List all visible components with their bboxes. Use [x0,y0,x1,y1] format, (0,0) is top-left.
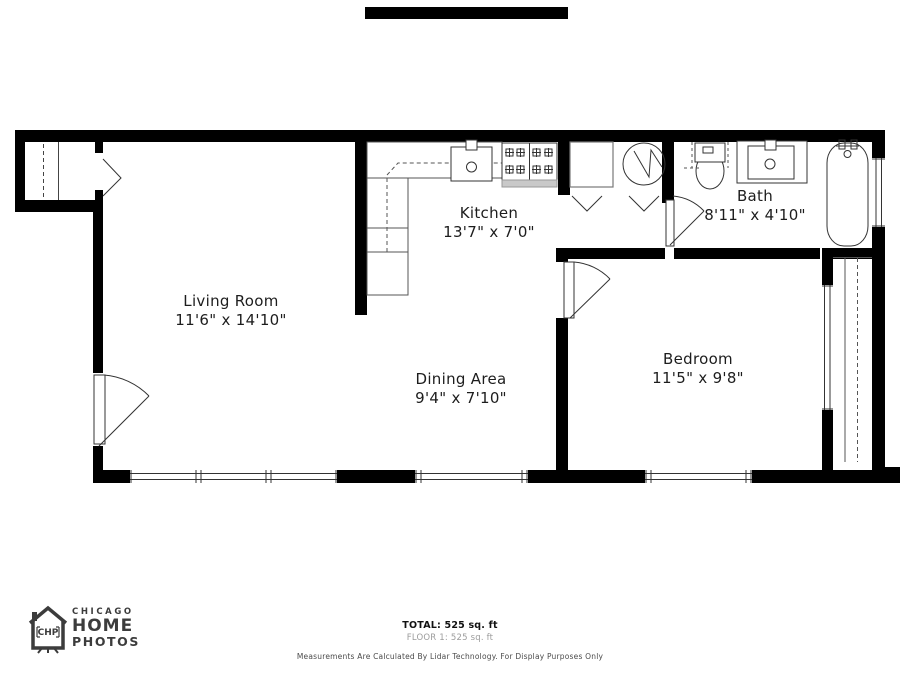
bedroom-closet-rod-icon [833,258,872,463]
label-living-room: Living Room 11'6" x 14'10" [175,292,286,330]
label-dining-area: Dining Area 9'4" x 7'10" [415,370,507,408]
room-name: Kitchen [460,204,518,222]
bathtub-icon [827,140,868,246]
room-name: Bath [737,187,773,205]
window-bedroom-right [822,285,833,410]
dryer-icon [623,143,665,185]
bedroom-door-icon [564,262,610,318]
fixtures-layer [0,0,900,675]
room-dims: 11'6" x 14'10" [175,311,286,330]
bath-sink-icon [737,140,807,183]
room-dims: 8'11" x 4'10" [704,206,806,225]
entry-door-icon [94,375,149,446]
room-dims: 9'4" x 7'10" [415,389,507,408]
stove-icon [502,143,557,187]
floor-plan-canvas: Living Room 11'6" x 14'10" Kitchen 13'7"… [0,0,900,675]
brand-logo: CHP CHICAGO HOME PHOTOS [28,604,140,654]
house-camera-icon: CHP [28,604,68,654]
room-name: Dining Area [415,370,506,388]
window-bath-right [872,158,885,227]
bifold-door-icons [572,196,659,211]
room-name: Bedroom [663,350,733,368]
label-kitchen: Kitchen 13'7" x 7'0" [443,204,535,242]
window-living-band [130,470,337,483]
closet-rod-icon [44,142,59,200]
kitchen-sink-icon [451,140,492,181]
logo-badge-text: CHP [38,628,59,638]
window-dining [415,470,528,483]
room-dims: 13'7" x 7'0" [443,223,535,242]
washer-icon [570,142,613,187]
logo-line-photos: PHOTOS [72,636,140,649]
room-name: Living Room [183,292,278,310]
toilet-icon [684,142,728,189]
bath-door-icon [666,196,704,246]
window-bedroom-bottom [645,470,752,483]
logo-line-home: HOME [72,618,140,635]
closet-door-icon [103,159,121,196]
label-bedroom: Bedroom 11'5" x 9'8" [652,350,744,388]
room-dims: 11'5" x 9'8" [652,369,744,388]
label-bath: Bath 8'11" x 4'10" [704,187,806,225]
